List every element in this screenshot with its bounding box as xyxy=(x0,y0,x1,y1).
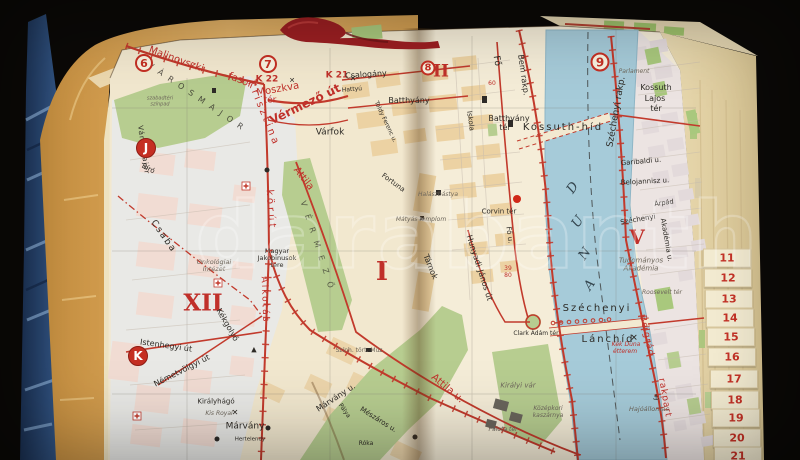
photo-vignette xyxy=(0,0,800,460)
photo-of-open-map-book: MalinovszkifasorK 22✕K 21✕MoszkvatérVérm… xyxy=(0,0,800,460)
